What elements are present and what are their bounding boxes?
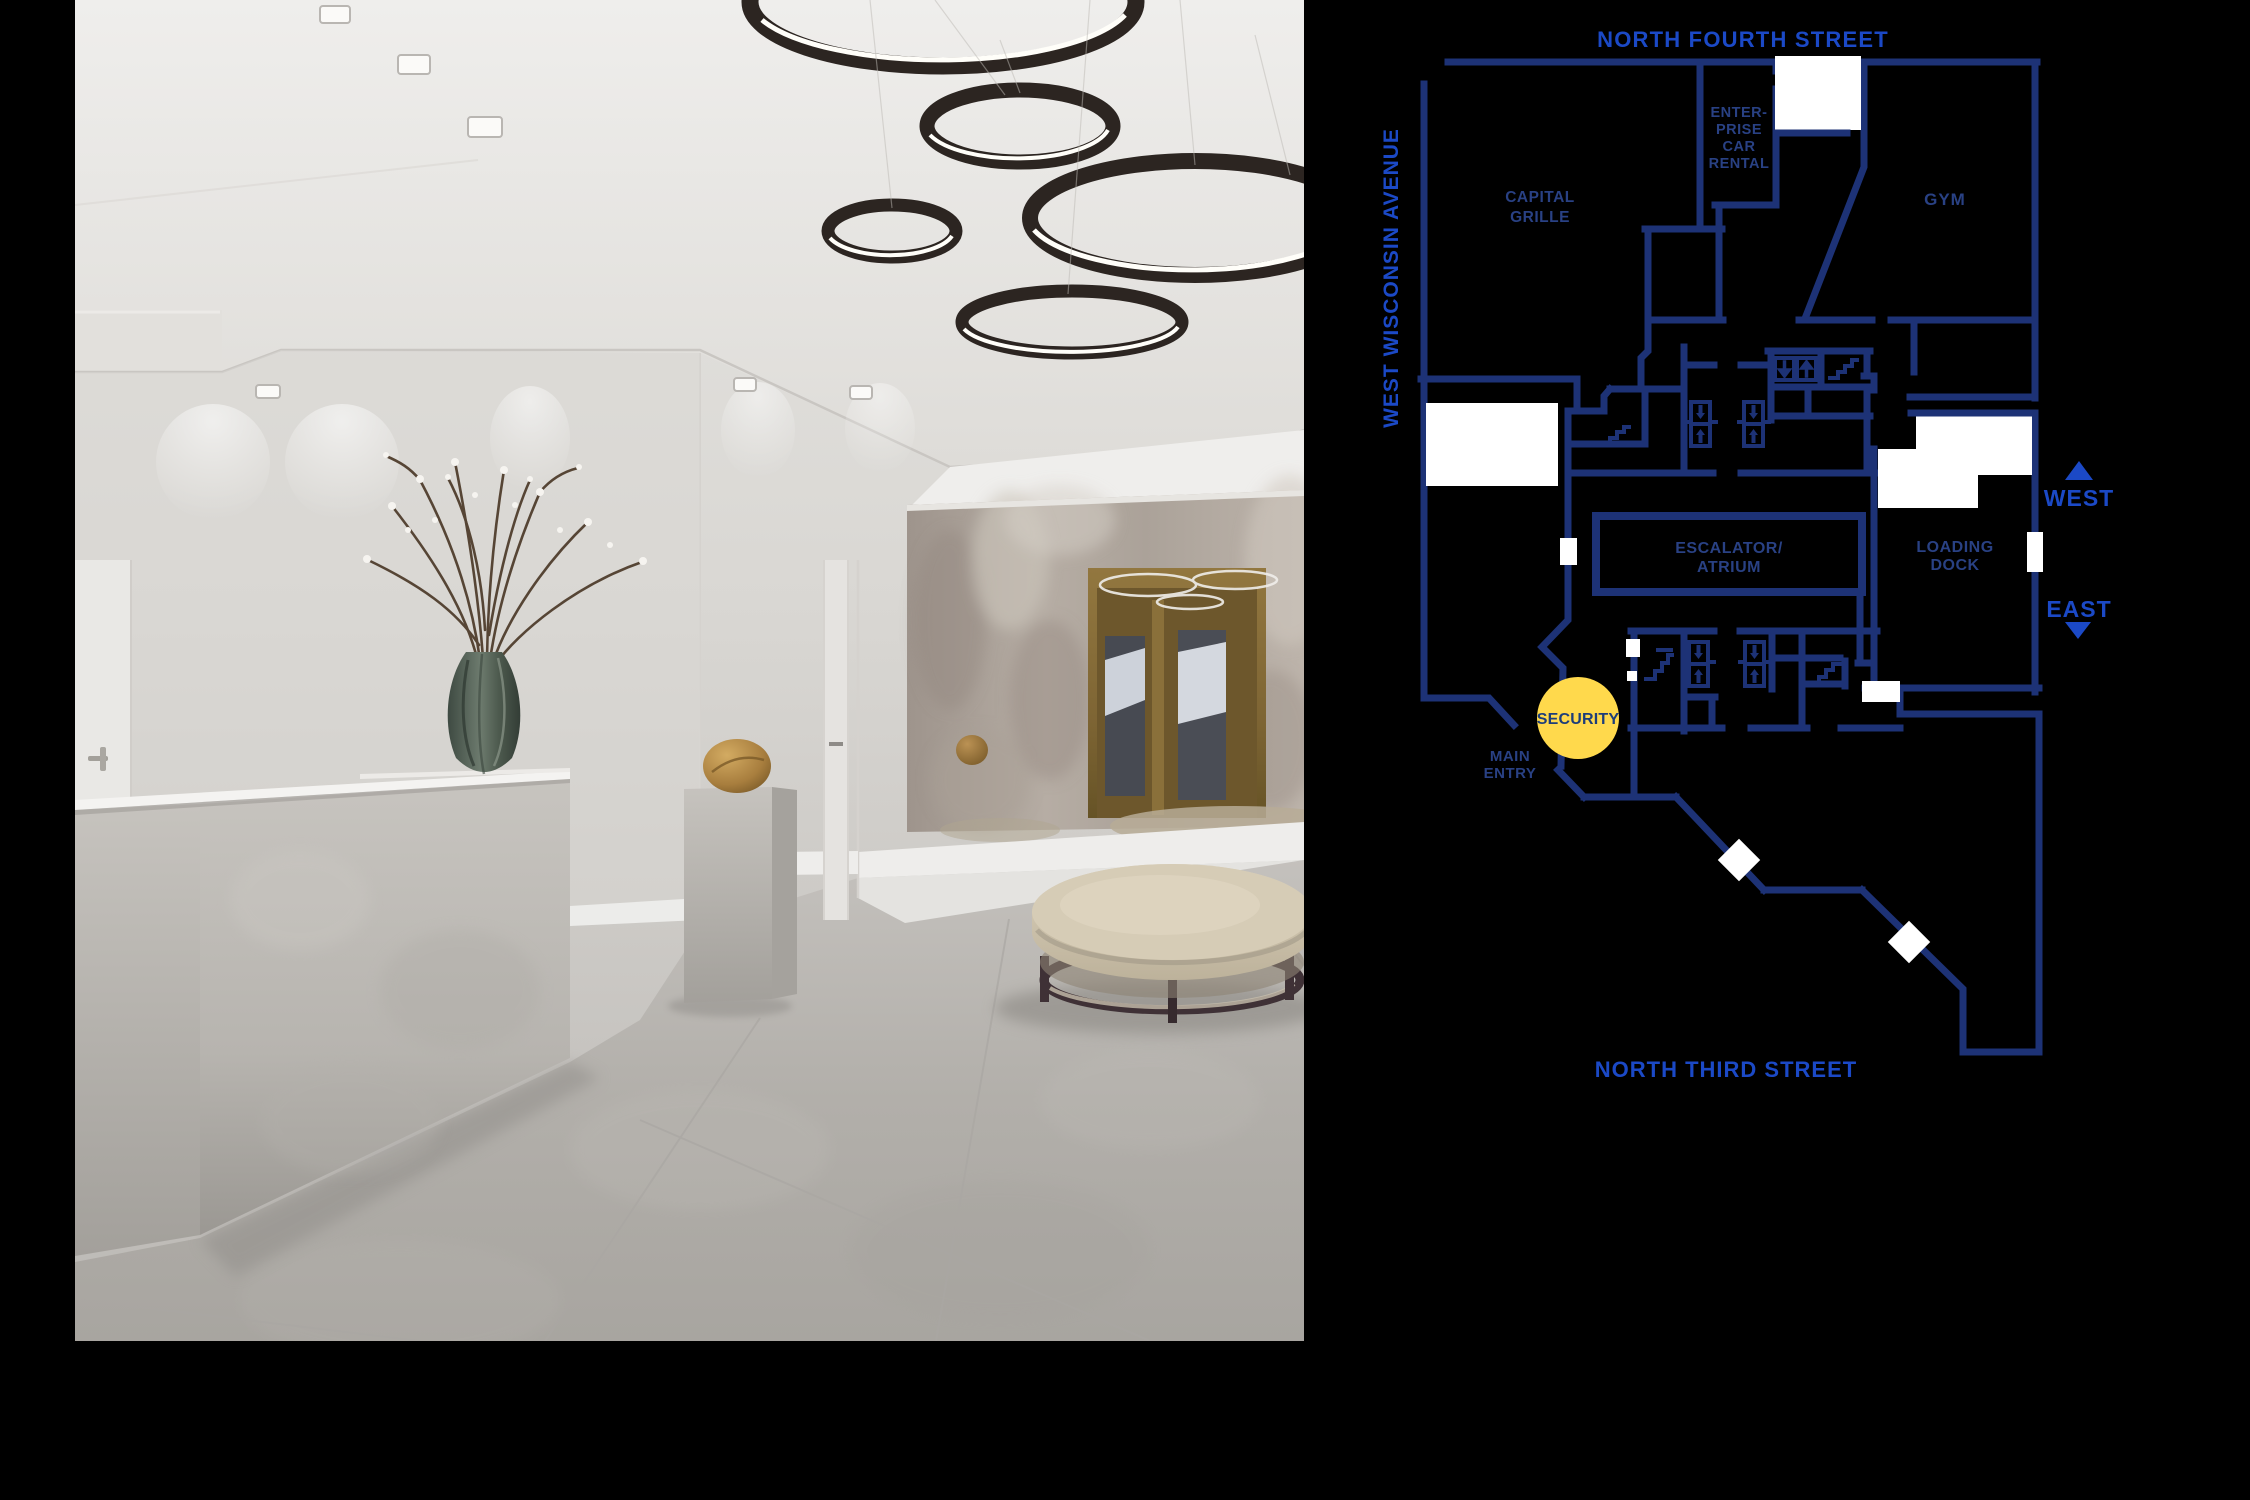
svg-text:DOCK: DOCK xyxy=(1930,557,1979,574)
svg-text:NORTH FOURTH STREET: NORTH FOURTH STREET xyxy=(1597,27,1889,52)
svg-text:ENTER-: ENTER- xyxy=(1711,105,1768,121)
svg-text:LOADING: LOADING xyxy=(1916,539,1993,556)
svg-text:ENTRY: ENTRY xyxy=(1484,765,1537,782)
svg-text:CAPITAL: CAPITAL xyxy=(1505,189,1575,206)
svg-text:GYM: GYM xyxy=(1924,190,1966,209)
svg-text:WEST WISCONSIN AVENUE: WEST WISCONSIN AVENUE xyxy=(1380,128,1403,428)
svg-text:ESCALATOR/: ESCALATOR/ xyxy=(1675,540,1783,557)
svg-text:EAST: EAST xyxy=(2046,596,2111,622)
svg-text:RENTAL: RENTAL xyxy=(1709,156,1770,172)
svg-text:SECURITY: SECURITY xyxy=(1537,711,1620,728)
svg-text:MAIN: MAIN xyxy=(1490,748,1530,765)
svg-text:ATRIUM: ATRIUM xyxy=(1697,559,1761,576)
svg-text:WEST: WEST xyxy=(2044,485,2114,511)
svg-text:GRILLE: GRILLE xyxy=(1510,209,1570,226)
svg-text:CAR: CAR xyxy=(1723,139,1756,155)
svg-text:PRISE: PRISE xyxy=(1716,122,1762,138)
svg-text:NORTH THIRD STREET: NORTH THIRD STREET xyxy=(1595,1057,1857,1082)
